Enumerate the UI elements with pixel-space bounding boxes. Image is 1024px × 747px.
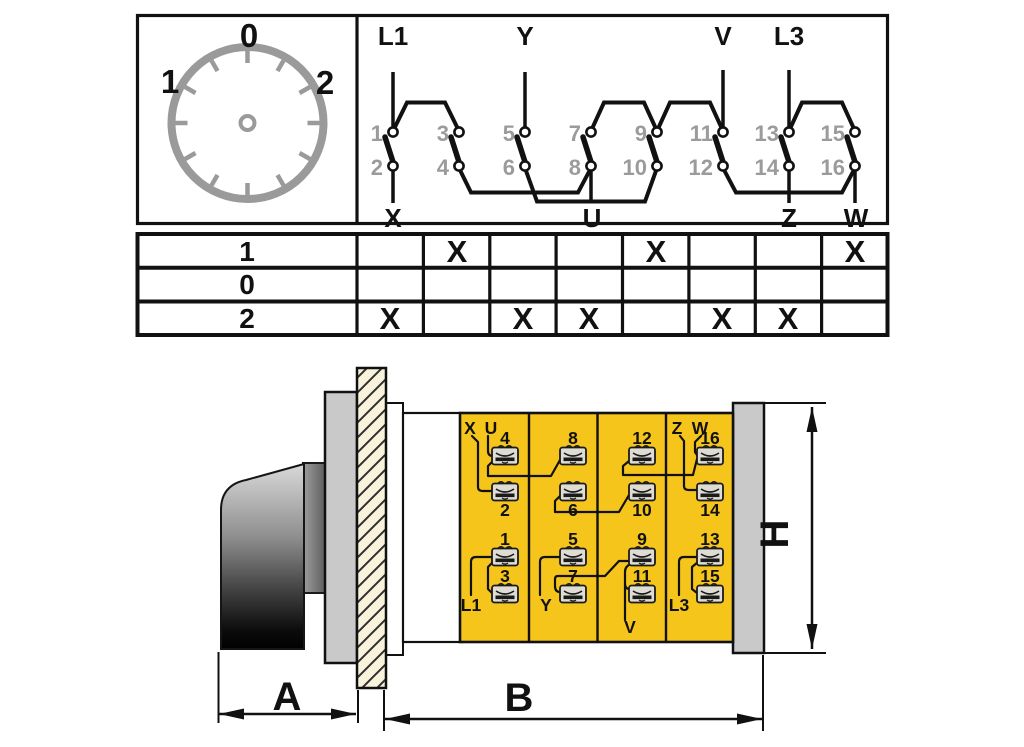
contact-number: 11	[690, 121, 713, 146]
block-label: V	[624, 617, 636, 637]
contact-number: 15	[821, 121, 845, 146]
side-view-drawing: 4 8 12 16 2 6 10 14 1 5 9 13 3 7 11 15 X…	[219, 368, 827, 731]
terminal-number: 14	[700, 500, 720, 520]
block-label: L3	[669, 595, 690, 615]
terminal-block: 4 8 12 16 2 6 10 14 1 5 9 13 3 7 11 15 X…	[460, 413, 733, 642]
dimension-b-label: B	[505, 676, 534, 720]
motor-terminal-label: U	[583, 203, 602, 233]
table-x-mark: X	[579, 301, 600, 336]
contact-number: 3	[437, 121, 449, 146]
hatch-strip-lines	[357, 368, 386, 688]
table-row-label: 1	[239, 236, 255, 267]
table-x-mark: X	[778, 301, 799, 336]
block-label: X	[464, 418, 476, 438]
arrow-up-icon	[807, 407, 818, 432]
switching-table: 1 0 2 X X X X X X X X	[138, 234, 888, 336]
motor-terminal-label: Z	[781, 203, 797, 233]
table-row-label: 2	[239, 303, 255, 334]
contact-number: 7	[569, 121, 581, 146]
front-band	[386, 403, 403, 655]
block-label: U	[485, 418, 498, 438]
contact-number: 9	[635, 121, 647, 146]
line-terminal-label: V	[714, 21, 732, 51]
line-terminal-label: L1	[378, 21, 408, 51]
block-label: Z	[672, 418, 683, 438]
terminal-number: 6	[568, 500, 578, 520]
terminal-number: 8	[568, 428, 578, 448]
terminal-number: 1	[500, 529, 510, 549]
mounting-plate	[325, 392, 357, 663]
table-x-mark: X	[513, 301, 534, 336]
contact-number: 13	[755, 121, 779, 146]
cam-switch-drawing: 0 1 2 L1 Y V L	[0, 0, 1024, 747]
contact-number: 2	[371, 155, 383, 180]
dial-position-label: 2	[316, 64, 334, 101]
line-terminal-label: L3	[774, 21, 804, 51]
terminal-number: 15	[700, 566, 720, 586]
table-x-mark: X	[712, 301, 733, 336]
contact-number: 16	[821, 155, 845, 180]
terminal-number: 9	[637, 529, 647, 549]
contact-number: 10	[623, 155, 647, 180]
terminal-number: 11	[633, 566, 652, 586]
block-label: L1	[461, 595, 482, 615]
terminal-number: 10	[632, 500, 652, 520]
dial-position-label: 0	[240, 17, 258, 54]
terminal-number: 7	[568, 566, 578, 586]
dimension-a-label: A	[273, 675, 302, 719]
table-x-mark: X	[845, 234, 866, 269]
line-terminal-label: Y	[516, 21, 533, 51]
contact-number: 12	[689, 155, 713, 180]
table-x-mark: X	[646, 234, 667, 269]
terminal-number: 2	[500, 500, 510, 520]
motor-terminal-label: X	[384, 203, 402, 233]
terminal-number: 5	[568, 529, 578, 549]
terminal-number: 13	[700, 529, 720, 549]
cam-switch-datasheet: 0 1 2 L1 Y V L	[0, 0, 1024, 747]
contact-number: 4	[437, 155, 450, 180]
motor-terminal-label: W	[844, 203, 869, 233]
block-label: Y	[540, 595, 552, 615]
dimension-h-label: H	[753, 520, 797, 549]
table-x-mark: X	[380, 301, 401, 336]
switch-body	[403, 413, 462, 642]
handle	[221, 464, 304, 649]
table-row-label: 0	[239, 269, 255, 300]
terminal-number: 12	[632, 428, 652, 448]
dial-position-label: 1	[161, 63, 179, 100]
panel-hatch-strip	[357, 368, 386, 688]
arrow-down-icon	[807, 624, 818, 649]
contact-number: 6	[503, 155, 515, 180]
dimension-b: B	[384, 655, 763, 731]
terminal-number: 3	[500, 566, 510, 586]
contact-number: 8	[569, 155, 581, 180]
arrow-right-icon	[331, 709, 356, 720]
arrow-right-icon	[737, 714, 762, 725]
contact-number: 14	[755, 155, 780, 180]
block-label: W	[692, 418, 709, 438]
top-panel: 0 1 2 L1 Y V L	[138, 16, 888, 234]
contact-number: 5	[503, 121, 515, 146]
terminal-number: 4	[500, 428, 510, 448]
arrow-left-icon	[219, 709, 244, 720]
contact-number: 1	[371, 121, 383, 146]
arrow-left-icon	[385, 714, 410, 725]
table-x-mark: X	[447, 234, 468, 269]
